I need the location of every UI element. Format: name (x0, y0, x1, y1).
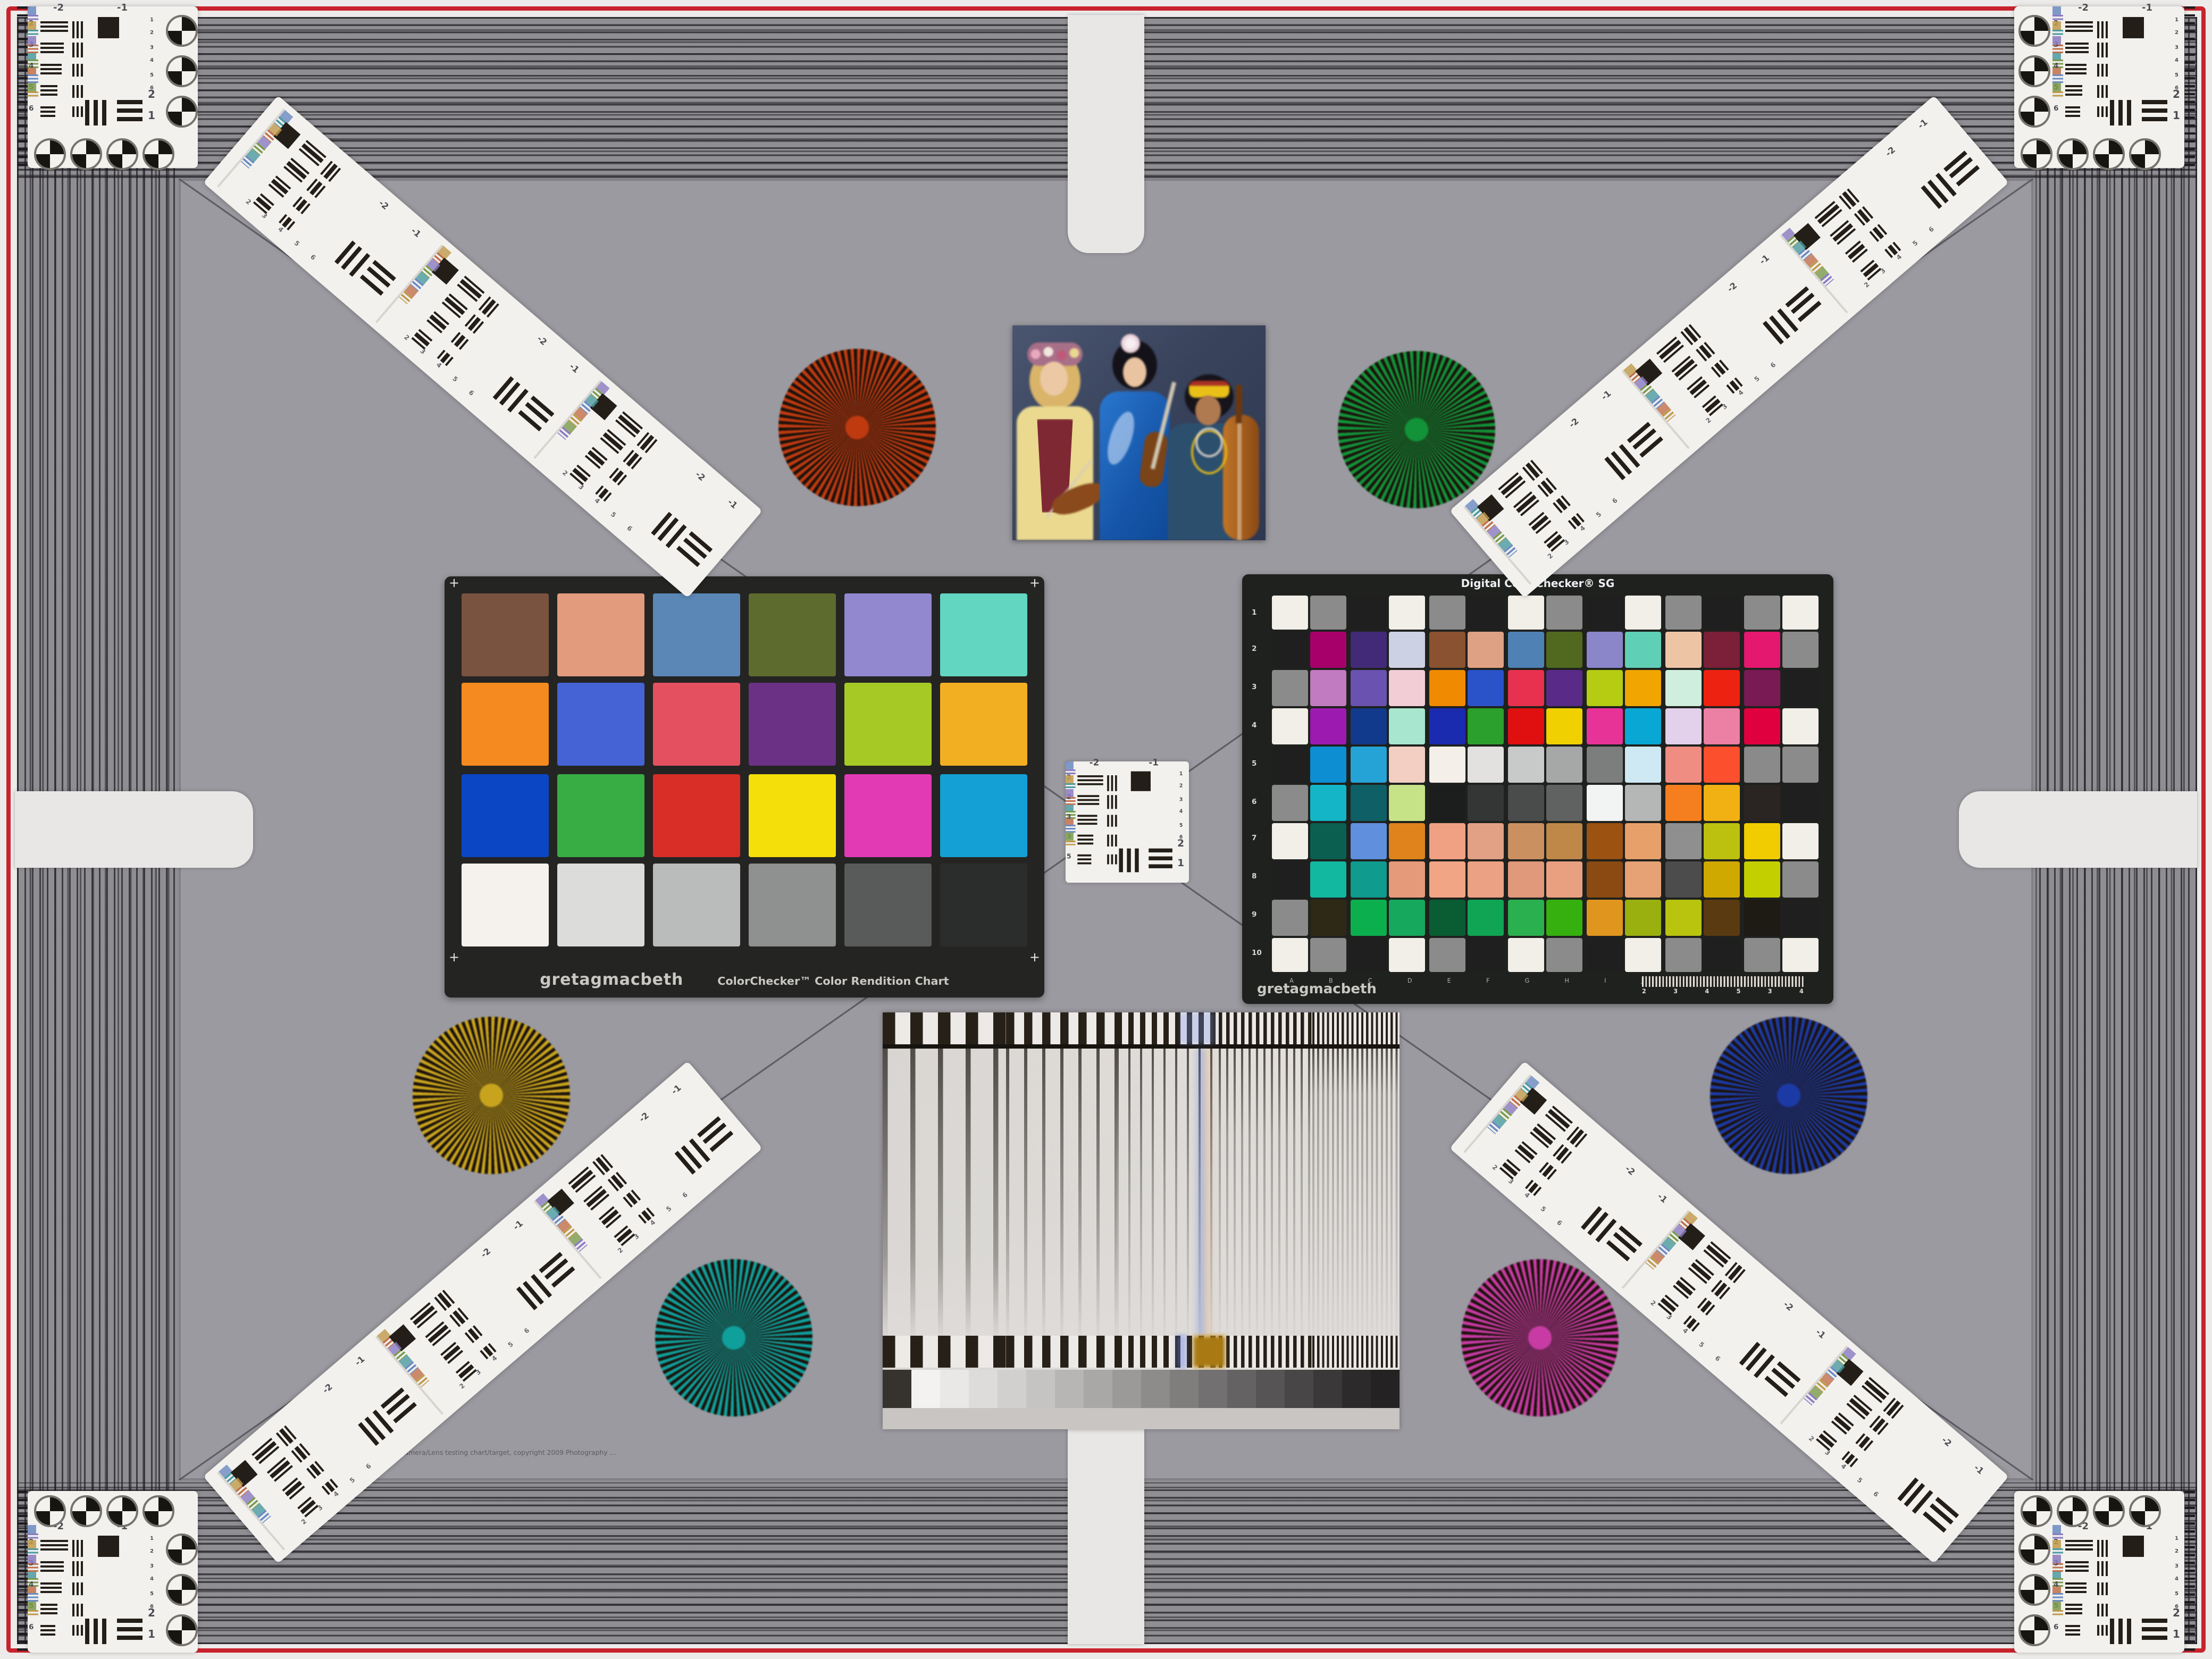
color-patch (748, 864, 836, 947)
res-bar (1107, 854, 1109, 864)
strip-number: 3 (419, 348, 426, 356)
usaf-right-number: 3 (150, 1564, 154, 1570)
usaf-right-number: 4 (150, 60, 154, 65)
strip-number: 5 (507, 1340, 514, 1348)
res-bar (39, 85, 57, 87)
sg-color-patch (1587, 594, 1622, 629)
res-bar (2102, 106, 2104, 116)
sg-color-patch (1547, 671, 1583, 706)
res-bar (82, 85, 84, 97)
sg-row-label: 5 (1252, 759, 1256, 767)
usaf-bottom-number: 2 (1177, 841, 1184, 851)
sg-color-patch (1587, 748, 1622, 782)
usaf-right-number: 3 (150, 46, 154, 51)
quadrant-circle-icon (143, 1495, 174, 1527)
strip-number: 2 (300, 1518, 307, 1526)
sg-color-patch (1429, 786, 1465, 820)
color-patch (844, 684, 932, 767)
usaf-mini-patch (2052, 68, 2061, 75)
color-patch (557, 774, 646, 857)
usaf-right-number: 2 (150, 1551, 154, 1556)
white-tab-top (1068, 15, 1144, 253)
sg-color-patch (1626, 633, 1661, 667)
res-bar (77, 1540, 79, 1557)
sg-col-label: D (1407, 975, 1412, 984)
res-bar (1127, 849, 1130, 873)
res-bar (39, 69, 61, 71)
sweep-line-segment (1312, 1048, 1400, 1335)
strip-number: 5 (451, 375, 459, 383)
res-bar (2142, 108, 2167, 112)
res-bar (2107, 1604, 2109, 1615)
siemens-star-green (1338, 351, 1495, 508)
usaf-mini-patch (2052, 1602, 2061, 1609)
portrait-middle-face (1123, 357, 1146, 387)
quadrant-circle-icon (2093, 1495, 2125, 1527)
sg-color-patch (1351, 748, 1386, 782)
border-comb-ticks (2184, 1491, 2195, 1653)
usaf-corner-target-3: -2-12345612345621 (2014, 1491, 2184, 1653)
usaf-bottom-number: 1 (148, 1631, 155, 1642)
sg-row-label: 2 (1252, 645, 1256, 653)
res-bar (2107, 1582, 2109, 1596)
sg-row-label: 9 (1252, 910, 1256, 919)
strip-number: 4 (1523, 1191, 1531, 1199)
usaf-bottom-number: 1 (2173, 1631, 2180, 1642)
usaf-right-number: 5 (150, 73, 154, 79)
res-bar (39, 1604, 57, 1606)
quadrant-circle-icon (2057, 1495, 2089, 1527)
strip-number: 5 (1698, 1341, 1705, 1349)
sg-row-label: 6 (1252, 797, 1256, 805)
res-bar (82, 64, 84, 78)
res-bar (39, 52, 64, 54)
sg-brand-text: gretagmacbeth (1257, 981, 1377, 998)
sg-color-patch (1547, 786, 1583, 820)
usaf-group-label: -2 (480, 1247, 492, 1260)
usaf-group-label: -2 (535, 334, 548, 347)
usaf-right-number: 2 (150, 32, 154, 37)
sg-color-patch (1665, 748, 1700, 782)
sg-col-label: H (1564, 975, 1569, 984)
res-bar (82, 43, 84, 58)
strip-number: 2 (562, 470, 569, 477)
usaf-left-number: 6 (2054, 106, 2058, 114)
res-bar (102, 100, 106, 125)
strip-number: 4 (1895, 253, 1903, 261)
sg-color-patch (1272, 786, 1308, 820)
res-bar (2064, 1561, 2089, 1563)
res-bar (2118, 1619, 2122, 1644)
res-bar (2142, 1636, 2167, 1639)
usaf-right-number: 3 (2175, 1564, 2179, 1570)
res-bar (605, 1214, 621, 1228)
colorchecker-grid (462, 593, 1027, 946)
usaf-group-label: -2 (1623, 1164, 1636, 1177)
colorchecker-label: gretagmacbeth ColorChecker™ Color Rendit… (445, 969, 1044, 988)
sg-color-patch (1390, 900, 1426, 935)
usaf-mini-patch (28, 1602, 36, 1609)
sg-color-patch (1508, 633, 1544, 667)
usaf-right-number: 1 (2175, 1537, 2179, 1542)
sg-row-label: 10 (1252, 948, 1262, 957)
color-patch (939, 774, 1027, 857)
sg-color-patch (1704, 939, 1740, 973)
usaf-group-label: -1 (1149, 761, 1159, 770)
sg-color-patch (1272, 939, 1308, 973)
res-bar (82, 1540, 84, 1557)
sg-color-patch (1665, 900, 1700, 935)
strip-number: 6 (1872, 1490, 1880, 1498)
res-bar (39, 1566, 64, 1568)
sg-color-patch (1429, 633, 1465, 667)
sg-color-patch (1704, 786, 1740, 820)
sweep-bars-segment (1219, 1012, 1312, 1044)
usaf-group-label: -1 (409, 227, 422, 239)
strip-number: 4 (491, 1354, 498, 1362)
sweep-fade-overlay (1312, 1048, 1400, 1335)
res-bar (39, 1545, 67, 1547)
strip-number: 6 (365, 1462, 372, 1470)
usaf-left-number: 6 (29, 1625, 33, 1632)
res-bar (39, 111, 54, 113)
sg-color-patch (1547, 862, 1583, 896)
portrait-middle-hair-flower (1121, 334, 1140, 353)
res-bar (1076, 824, 1096, 826)
sg-row-label: 7 (1252, 834, 1256, 843)
sg-color-patch (1429, 900, 1465, 935)
sg-color-patch (1429, 594, 1465, 629)
usaf-group-label: -1 (354, 1355, 366, 1368)
res-bar (39, 1608, 57, 1611)
res-bar (289, 1485, 305, 1499)
usaf-res-box: -2-12345612345621 (2052, 6, 2184, 134)
portrait-right-cello-strings (1238, 415, 1242, 540)
sg-color-patch (1429, 748, 1465, 782)
res-bar (1116, 795, 1118, 809)
res-bar (77, 21, 79, 38)
strip-number: 4 (1737, 389, 1745, 397)
res-bar (1116, 854, 1118, 864)
res-bar (2102, 85, 2104, 97)
sg-color-patch (1665, 671, 1700, 706)
res-bar (1149, 849, 1172, 852)
sg-col-label: I (1604, 975, 1606, 984)
res-bar (1111, 795, 1113, 809)
color-patch (844, 774, 932, 857)
sg-resolution-wedge: 234534 (1642, 976, 1804, 995)
res-bar (2064, 47, 2089, 49)
res-bar (39, 73, 61, 76)
sg-color-patch (1351, 862, 1386, 896)
res-bar (39, 64, 61, 66)
usaf-bottom-number: 1 (1177, 860, 1184, 870)
usaf-right-number: 5 (150, 1592, 154, 1597)
strip-number: 5 (1539, 1205, 1547, 1213)
res-bar (2142, 100, 2167, 104)
sg-color-patch (1311, 709, 1347, 744)
res-bar (1135, 849, 1138, 873)
sg-color-patch (1744, 633, 1779, 667)
res-bar (2107, 1540, 2109, 1557)
sg-color-patch (1704, 594, 1740, 629)
strip-number: 3 (1824, 1449, 1831, 1457)
sg-color-patch (1547, 939, 1583, 973)
sg-color-patch (1665, 633, 1700, 667)
res-bar (117, 117, 143, 121)
strip-number: 2 (617, 1246, 624, 1254)
usaf-black-square (2123, 17, 2144, 38)
res-bar (1107, 775, 1109, 791)
sg-color-patch (1272, 709, 1308, 744)
sweep-bars-segment (883, 1336, 1006, 1368)
res-bar (2064, 90, 2082, 92)
colorchecker-classic: + + + + gretagmacbeth ColorChecker™ Colo… (445, 576, 1044, 998)
strip-number: 5 (1912, 239, 1919, 247)
res-bar (1685, 328, 1697, 342)
res-bar (1076, 835, 1093, 837)
sg-color-patch (1665, 709, 1700, 744)
sg-color-patch (1547, 900, 1583, 935)
usaf-bottom-number: 2 (2173, 1610, 2180, 1621)
sg-color-patch (1665, 594, 1700, 629)
usaf-right-number: 1 (150, 1537, 154, 1542)
sg-color-patch (1587, 862, 1622, 896)
res-bar (77, 1604, 79, 1615)
usaf-bottom-number: 2 (2173, 91, 2180, 102)
res-bar (39, 90, 57, 92)
sg-color-patch (1547, 709, 1583, 744)
res-bar (1111, 815, 1113, 827)
siemens-star-red (778, 349, 936, 506)
res-bar (2107, 85, 2109, 97)
res-bar (1116, 775, 1118, 791)
res-bar (2102, 1540, 2104, 1557)
res-bar (2064, 1630, 2079, 1632)
border-comb-ticks (2184, 6, 2195, 168)
quadrant-circle-icon (143, 138, 174, 170)
sg-color-patch (1587, 633, 1622, 667)
res-bar (2107, 64, 2109, 78)
usaf-group-label: -1 (512, 1219, 525, 1232)
quadrant-circle-icon (166, 15, 198, 47)
sweep-main-area (883, 1048, 1400, 1335)
res-bar (39, 95, 57, 97)
sg-color-patch (1390, 671, 1426, 706)
usaf-group-label: -1 (117, 6, 128, 16)
usaf-mini-patch (28, 1556, 36, 1563)
res-bar (2064, 95, 2082, 97)
usaf-right-number: 3 (1179, 798, 1183, 803)
usaf-black-square (1131, 772, 1151, 791)
usaf-mini-patch (2052, 1594, 2063, 1601)
usaf-mini-patch (1066, 783, 1076, 790)
quadrant-circle-icon (2093, 138, 2125, 170)
sg-color-patch (1704, 671, 1740, 706)
sg-color-patch (1744, 594, 1779, 629)
usaf-right-number: 4 (2175, 60, 2179, 65)
sg-grid (1272, 594, 1819, 973)
border-comb-ticks (17, 1491, 28, 1653)
res-bar (39, 31, 67, 33)
res-bar (39, 1630, 54, 1632)
res-bar (2097, 1604, 2099, 1615)
strip-number: 4 (1682, 1327, 1689, 1335)
usaf-mini-patch (28, 1571, 36, 1578)
strip-number: 2 (1863, 281, 1871, 289)
res-bar (2102, 21, 2104, 38)
res-bar (82, 21, 84, 38)
sg-color-patch (1665, 824, 1700, 859)
sg-row-label: 3 (1252, 683, 1256, 691)
quadrant-circle-icon (2018, 96, 2050, 128)
usaf-mini-patch (28, 1594, 38, 1601)
res-bar (1076, 854, 1090, 857)
res-bar (2064, 52, 2089, 54)
sg-color-patch (1626, 594, 1661, 629)
sg-color-patch (1744, 786, 1779, 820)
sg-color-patch (1744, 862, 1779, 896)
res-bar (2142, 117, 2167, 121)
sg-color-patch (1351, 939, 1386, 973)
res-bar (2102, 64, 2104, 78)
sg-color-patch (1508, 824, 1544, 859)
usaf-bottom-number: 1 (148, 113, 155, 123)
usaf-res-box: -2-12345612345621 (28, 1525, 160, 1653)
res-bar (94, 100, 97, 125)
usaf-right-number: 1 (2175, 18, 2179, 23)
sg-color-patch (1744, 748, 1779, 782)
strip-number: 2 (1705, 416, 1712, 424)
usaf-mini-patch (1066, 761, 1074, 768)
usaf-target-center: -2-12233512345621 (1066, 761, 1189, 883)
res-bar (77, 1582, 79, 1596)
strip-number: 5 (348, 1476, 356, 1484)
res-bar (72, 85, 74, 97)
sg-color-patch (1351, 709, 1386, 744)
res-bar (1119, 849, 1122, 873)
res-bar (39, 1540, 67, 1542)
res-bar (1076, 859, 1090, 861)
usaf-group-label: -2 (638, 1111, 651, 1124)
sg-color-patch (1390, 709, 1426, 744)
strip-number: 3 (1879, 267, 1887, 275)
color-patch (939, 593, 1027, 676)
sg-color-patch (1469, 900, 1504, 935)
res-bar (2102, 1582, 2104, 1596)
usaf-mini-patch (28, 29, 38, 37)
sg-color-patch (1783, 824, 1819, 859)
usaf-mini-patch (28, 37, 36, 45)
res-bar (39, 1571, 64, 1573)
quadrant-circle-icon (166, 1574, 198, 1606)
sg-color-patch (1390, 786, 1426, 820)
sg-wedge-number: 5 (1737, 987, 1741, 995)
sg-color-patch (1469, 824, 1504, 859)
usaf-right-number: 2 (1179, 785, 1183, 790)
res-bar (2064, 1582, 2085, 1585)
res-bar (2127, 100, 2131, 125)
sg-wedge-number: 3 (1673, 987, 1678, 995)
strip-number: 2 (1649, 1299, 1657, 1307)
sg-col-label: E (1447, 975, 1451, 984)
sg-color-patch (1704, 900, 1740, 935)
usaf-group-label: -2 (53, 6, 64, 16)
sg-color-patch (1704, 709, 1740, 744)
strip-number: 3 (1721, 403, 1728, 410)
res-bar (39, 1592, 61, 1594)
sg-color-patch (1783, 671, 1819, 706)
quadrant-circle-icon (2021, 138, 2052, 170)
registration-plus-icon: + (1029, 579, 1040, 591)
quadrant-circle-icon (2129, 138, 2161, 170)
quadrant-circle-icon (2018, 15, 2050, 47)
grayscale-step-ramp (883, 1370, 1400, 1408)
usaf-mini-patch (28, 68, 36, 75)
sg-color-patch (1626, 786, 1661, 820)
usaf-corner-target-0: -2-12345612345621 (28, 6, 198, 168)
sg-color-patch (1704, 748, 1740, 782)
usaf-mini-patch (1066, 776, 1074, 783)
strip-number: 2 (1491, 1163, 1498, 1171)
res-bar (1851, 248, 1867, 263)
usaf-group-label: -1 (1917, 118, 1930, 131)
quadrant-circle-icon (2018, 1614, 2050, 1646)
res-bar (2107, 1625, 2109, 1635)
sg-color-patch (1351, 900, 1386, 935)
color-patch (652, 864, 741, 947)
usaf-mini-patch (28, 1548, 38, 1555)
sg-color-patch (1626, 709, 1661, 744)
usaf-black-square (98, 1536, 119, 1557)
res-bar (2064, 1592, 2085, 1594)
res-bar (2064, 26, 2092, 28)
white-tab-bottom (1068, 1406, 1144, 1644)
res-bar (1107, 815, 1109, 827)
sg-color-patch (1311, 633, 1347, 667)
color-patch (844, 864, 932, 947)
sg-wedge-number: 2 (1642, 987, 1646, 995)
sg-color-patch (1783, 633, 1819, 667)
usaf-left-number: 6 (29, 106, 33, 114)
res-bar (39, 116, 54, 118)
res-bar (1111, 835, 1113, 846)
quadrant-circle-icon (106, 1495, 138, 1527)
sg-wedge-number: 4 (1705, 987, 1709, 995)
sg-color-patch (1272, 633, 1308, 667)
res-bar (39, 26, 67, 28)
res-bar (2102, 1561, 2104, 1577)
sg-color-patch (1469, 748, 1504, 782)
res-bar (2107, 43, 2109, 58)
res-bar (77, 106, 79, 116)
usaf-group-label: -2 (1090, 761, 1100, 770)
res-bar (1076, 815, 1096, 817)
strip-number: 2 (458, 1382, 466, 1390)
usaf-right-number: 4 (1179, 811, 1183, 816)
usaf-black-square (98, 17, 119, 38)
res-bar (39, 21, 67, 23)
usaf-mini-patch (2052, 37, 2061, 45)
sg-row-label: 8 (1252, 872, 1256, 881)
usaf-group-label: -2 (53, 1525, 64, 1535)
res-bar (1111, 854, 1113, 864)
sg-color-patch (1508, 862, 1544, 896)
res-bar (117, 100, 143, 104)
sg-row-label: 4 (1252, 721, 1256, 730)
res-bar (72, 1540, 74, 1557)
sg-color-patch (1704, 633, 1740, 667)
